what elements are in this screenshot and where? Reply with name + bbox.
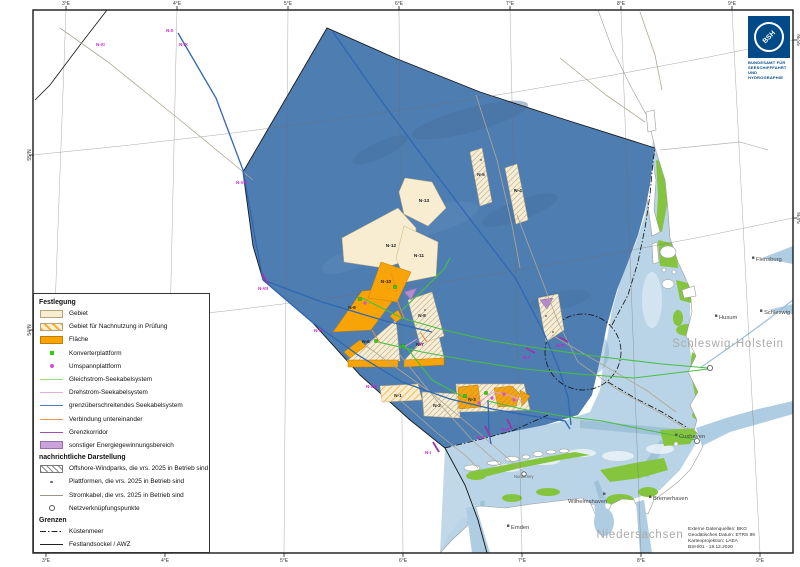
area-label: N-13	[419, 198, 430, 204]
legend-item-grenzueberschreitend: grenzüberschreitendes Seekabelsystem	[39, 399, 209, 412]
legend-item-stromkabel: Stromkabel, die vrs. 2025 in Betrieb sin…	[39, 488, 209, 501]
bsh-org-name: BUNDESAMT FÜR SEESCHIFFFAHRT UND HYDROGR…	[748, 60, 796, 80]
svg-text:3°E: 3°E	[42, 558, 51, 564]
legend-item-offshore-windparks: Offshore-Windparks, die vrs. 2025 in Bet…	[39, 462, 209, 475]
area-label: N-7	[416, 342, 424, 348]
svg-text:5°E: 5°E	[284, 1, 293, 7]
bsh-logo-box: BSH	[748, 16, 790, 58]
svg-text:9°E: 9°E	[756, 558, 765, 564]
gebiet-swatch	[39, 310, 64, 318]
legend-item-drehstrom: Drehstrom-Seekabelsystem	[39, 386, 209, 399]
legend-section-title: Grenzen	[39, 517, 209, 524]
gleichstrom-line-icon	[39, 379, 64, 380]
nachnutzung-swatch	[39, 323, 64, 331]
corridor-label: N-V	[523, 355, 531, 360]
corridor-label: N-X	[166, 28, 174, 33]
corridor-label: N-XI	[96, 42, 105, 47]
legend-item-konverterplattform: Konverterplattform	[39, 347, 209, 360]
svg-text:55°N: 55°N	[27, 149, 33, 161]
area-label: N-9	[348, 305, 356, 311]
svg-text:8°E: 8°E	[637, 558, 646, 564]
corridor-label: N-II	[477, 435, 484, 440]
city-label: Emden	[511, 525, 529, 531]
svg-text:4°E: 4°E	[173, 1, 182, 7]
corridor-label: N-VI	[314, 328, 323, 333]
area-label: N-10	[381, 279, 392, 285]
stromkabel-line-icon	[39, 495, 64, 496]
source-line: BSH/01 - 18.12.2020	[688, 545, 792, 551]
area-label: N-3	[468, 397, 476, 403]
corridor-label: N-XIII	[366, 384, 377, 389]
svg-text:3°E: 3°E	[62, 1, 71, 7]
corridor-label: N-III	[501, 427, 509, 432]
city-label: Wilhelmshaven	[568, 499, 607, 505]
legend-item-nachnutzung: Gebiet für Nachnutzung in Prüfung	[39, 320, 209, 333]
area-label: N-4	[514, 188, 522, 194]
legend-item-festlandsockel: Festlandsockel / AWZ	[39, 538, 209, 551]
city-label: Norderney	[514, 474, 534, 479]
area-label: N-5	[477, 172, 485, 178]
svg-text:8°E: 8°E	[617, 1, 626, 7]
source-note: Externe Datenquellen: BKG Geodätisches D…	[688, 527, 792, 551]
legend-item-umspannplattform: Umspannplattform	[39, 360, 209, 373]
legend-item-kuestenmeer: Küstenmeer	[39, 525, 209, 538]
legend-item-gebiet: Gebiet	[39, 307, 209, 320]
svg-text:9°E: 9°E	[728, 1, 737, 7]
city-label: Schleswig	[764, 310, 790, 316]
svg-text:6°E: 6°E	[395, 1, 404, 7]
windpark-hatch-swatch	[39, 465, 64, 473]
area-label: N-12	[386, 243, 397, 249]
legend: Festlegung Gebiet Gebiet für Nachnutzung…	[33, 293, 210, 553]
svg-text:4°E: 4°E	[161, 558, 170, 564]
grenzkorridor-line-icon	[39, 432, 64, 433]
awz-line-icon	[39, 544, 64, 545]
legend-item-plattformen: Plattformen, die vrs. 2025 in Betrieb si…	[39, 475, 209, 488]
legend-item-grenzkorridor: Grenzkorridor	[39, 426, 209, 439]
area-label: N-8	[418, 313, 426, 319]
region-label: Schleswig-Holstein	[672, 338, 784, 350]
city-label: Bremerhaven	[653, 496, 688, 502]
area-label: N-6	[362, 339, 370, 345]
umspann-dot-icon	[39, 364, 64, 368]
corridor-label: N-IX	[179, 42, 188, 47]
area-label: N-11	[414, 253, 424, 259]
svg-text:7°E: 7°E	[506, 1, 515, 7]
flaeche-swatch	[39, 336, 64, 344]
nvp-ring-icon	[39, 505, 64, 511]
bsh-logo-ring-icon: BSH	[754, 22, 784, 52]
kuestenmeer-line-icon	[39, 531, 64, 532]
svg-text:5°E: 5°E	[280, 558, 289, 564]
corridor-label: N-IV	[556, 343, 565, 348]
drehstrom-line-icon	[39, 392, 64, 393]
city-label: Cuxhaven	[679, 434, 705, 440]
area-label: N-1	[394, 393, 402, 399]
sonstiger-swatch	[39, 441, 64, 449]
corridor-label: N-VIII	[236, 180, 247, 185]
city-label: Flensburg	[756, 257, 782, 263]
legend-item-verbindung: Verbindung untereinander	[39, 413, 209, 426]
bsh-logo: BSH BUNDESAMT FÜR SEESCHIFFFAHRT UND HYD…	[748, 16, 796, 80]
corridor-label: N-I	[425, 450, 431, 455]
legend-item-gleichstrom: Gleichstrom-Seekabelsystem	[39, 373, 209, 386]
legend-section-title: Festlegung	[39, 299, 209, 306]
svg-text:6°E: 6°E	[399, 558, 408, 564]
legend-item-sonstiger: sonstiger Energiegewinnungsbereich	[39, 439, 209, 452]
verbindung-line-icon	[39, 419, 64, 420]
legend-item-netzverknuepfungspunkte: Netzverknüpfungspunkte	[39, 502, 209, 515]
konverter-dot-icon	[39, 351, 64, 355]
corridor-label: N-VII	[258, 286, 268, 291]
legend-section-title: nachrichtliche Darstellung	[39, 454, 209, 461]
region-label: Niedersachsen	[596, 529, 683, 541]
grenzueberschreitend-line-icon	[39, 405, 64, 406]
bsh-logo-abbr: BSH	[761, 29, 776, 44]
map-page: N-13 N-12 N-11 N-10 N-9 N-8 N-7 N-6 N-5 …	[0, 0, 800, 567]
legend-item-flaeche: Fläche	[39, 333, 209, 346]
svg-text:7°E: 7°E	[518, 558, 527, 564]
city-label: Husum	[719, 315, 738, 321]
platform-dot-icon	[39, 481, 64, 484]
area-label: N-2	[433, 403, 441, 409]
